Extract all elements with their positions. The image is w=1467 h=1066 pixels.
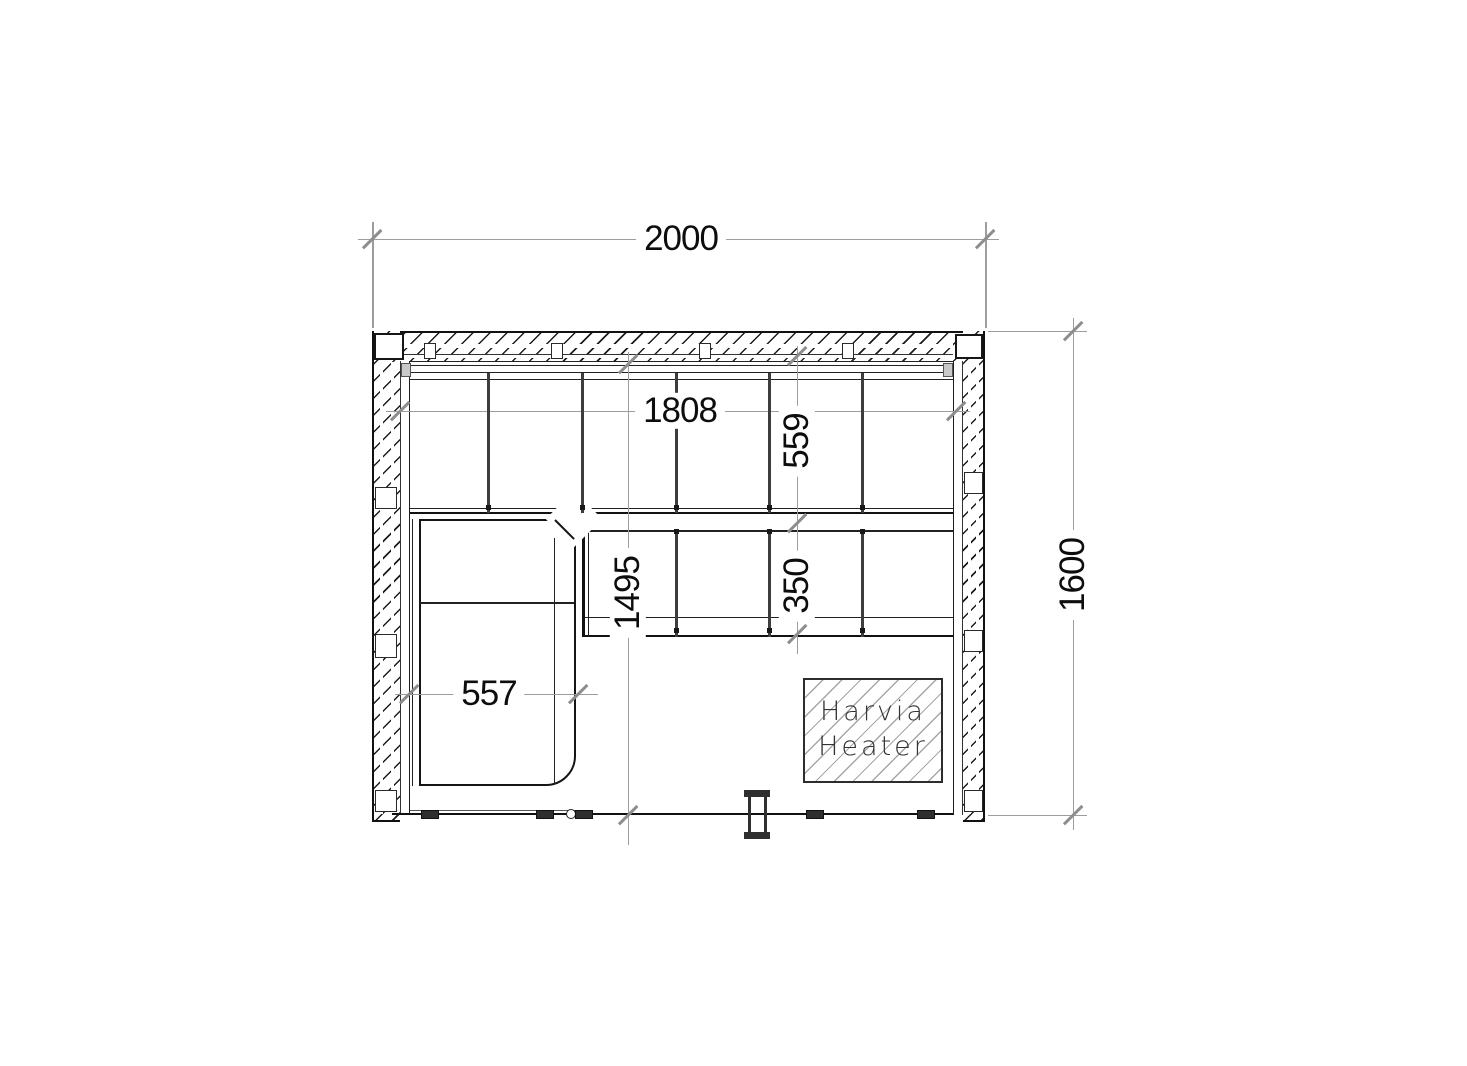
corner-post-top-left [374, 333, 404, 360]
bench-divider [768, 530, 771, 637]
bench-divider-nub [860, 529, 865, 534]
wall-lining-left [400, 361, 410, 815]
glass-clamp [536, 810, 554, 819]
door-handle[interactable] [744, 832, 770, 839]
wall-stud [375, 790, 397, 812]
bench-side-inner-line [554, 538, 555, 784]
wall-stud [964, 472, 983, 494]
glass-clamp [575, 810, 593, 819]
bench-divider-nub [860, 628, 865, 633]
dim-interior-depth: 1495 [610, 548, 646, 638]
bench-side-divider [420, 602, 574, 604]
rail-end-block [401, 363, 411, 377]
wall-lining-right [953, 361, 963, 815]
bench-lower-left-edge [582, 530, 585, 637]
wall-stud [699, 343, 711, 359]
backrest-rail [410, 365, 953, 366]
bench-divider-nub [860, 505, 865, 510]
dim-bench-run-width: 1808 [635, 393, 725, 429]
door-handle[interactable] [764, 796, 767, 833]
wall-layer-gap [404, 344, 953, 348]
wall-stud [375, 634, 397, 658]
backrest-rail [410, 379, 953, 380]
dim-overall-depth: 1600 [1055, 530, 1091, 620]
wall-left [372, 331, 400, 822]
dim-overall-width: 2000 [636, 221, 726, 257]
bench-divider-nub [674, 529, 679, 534]
heater-label-line1: Harvia [805, 694, 941, 729]
bench-upper-front-edge [410, 512, 953, 515]
bench-divider [581, 373, 584, 513]
bench-divider-nub [486, 505, 491, 510]
door-handle[interactable] [748, 796, 751, 833]
corner-post-top-right [955, 334, 983, 359]
wall-stud [842, 343, 854, 359]
rail-end-block [943, 363, 953, 377]
glass-clamp [806, 810, 824, 819]
wall-layer-gap [380, 362, 383, 814]
bench-upper-front-edge [410, 508, 953, 509]
wall-stud [375, 487, 397, 509]
bench-divider-nub [767, 628, 772, 633]
heater-label: Harvia Heater [805, 694, 941, 764]
bench-divider [861, 373, 864, 513]
glass-wall [392, 813, 953, 815]
glass-clamp [421, 810, 439, 819]
wall-layer-gap [976, 362, 979, 814]
dim-lower-bench-depth: 350 [779, 550, 815, 621]
bench-divider [861, 530, 864, 637]
bench-side-support-rail [412, 519, 413, 786]
bench-divider-nub [767, 505, 772, 510]
bench-side [419, 519, 576, 786]
bench-divider [768, 373, 771, 513]
heater-label-line2: Heater [805, 729, 941, 764]
glass-clamp [917, 810, 935, 819]
backrest-rail [410, 372, 953, 373]
floor-plan-canvas: Harvia Heater 2000180855755935014951600 [0, 0, 1467, 1066]
wall-stud [964, 630, 983, 652]
bench-lower-left-edge [588, 530, 589, 637]
bench-divider-nub [674, 628, 679, 633]
wall-stud [964, 790, 983, 812]
dim-side-bench-width: 557 [453, 676, 524, 712]
bench-divider-nub [674, 505, 679, 510]
wall-layer-gap [968, 362, 971, 814]
wall-layer-gap [391, 362, 394, 814]
wall-stud [551, 343, 563, 359]
bench-divider [675, 530, 678, 637]
dim-upper-bench-depth: 559 [779, 405, 815, 476]
wall-stud [424, 343, 436, 359]
wall-layer-gap [404, 354, 953, 358]
heater: Harvia Heater [803, 678, 943, 783]
bench-divider-nub [580, 505, 585, 510]
bench-divider-nub [767, 529, 772, 534]
bench-divider [487, 373, 490, 513]
wall-right [963, 331, 985, 822]
